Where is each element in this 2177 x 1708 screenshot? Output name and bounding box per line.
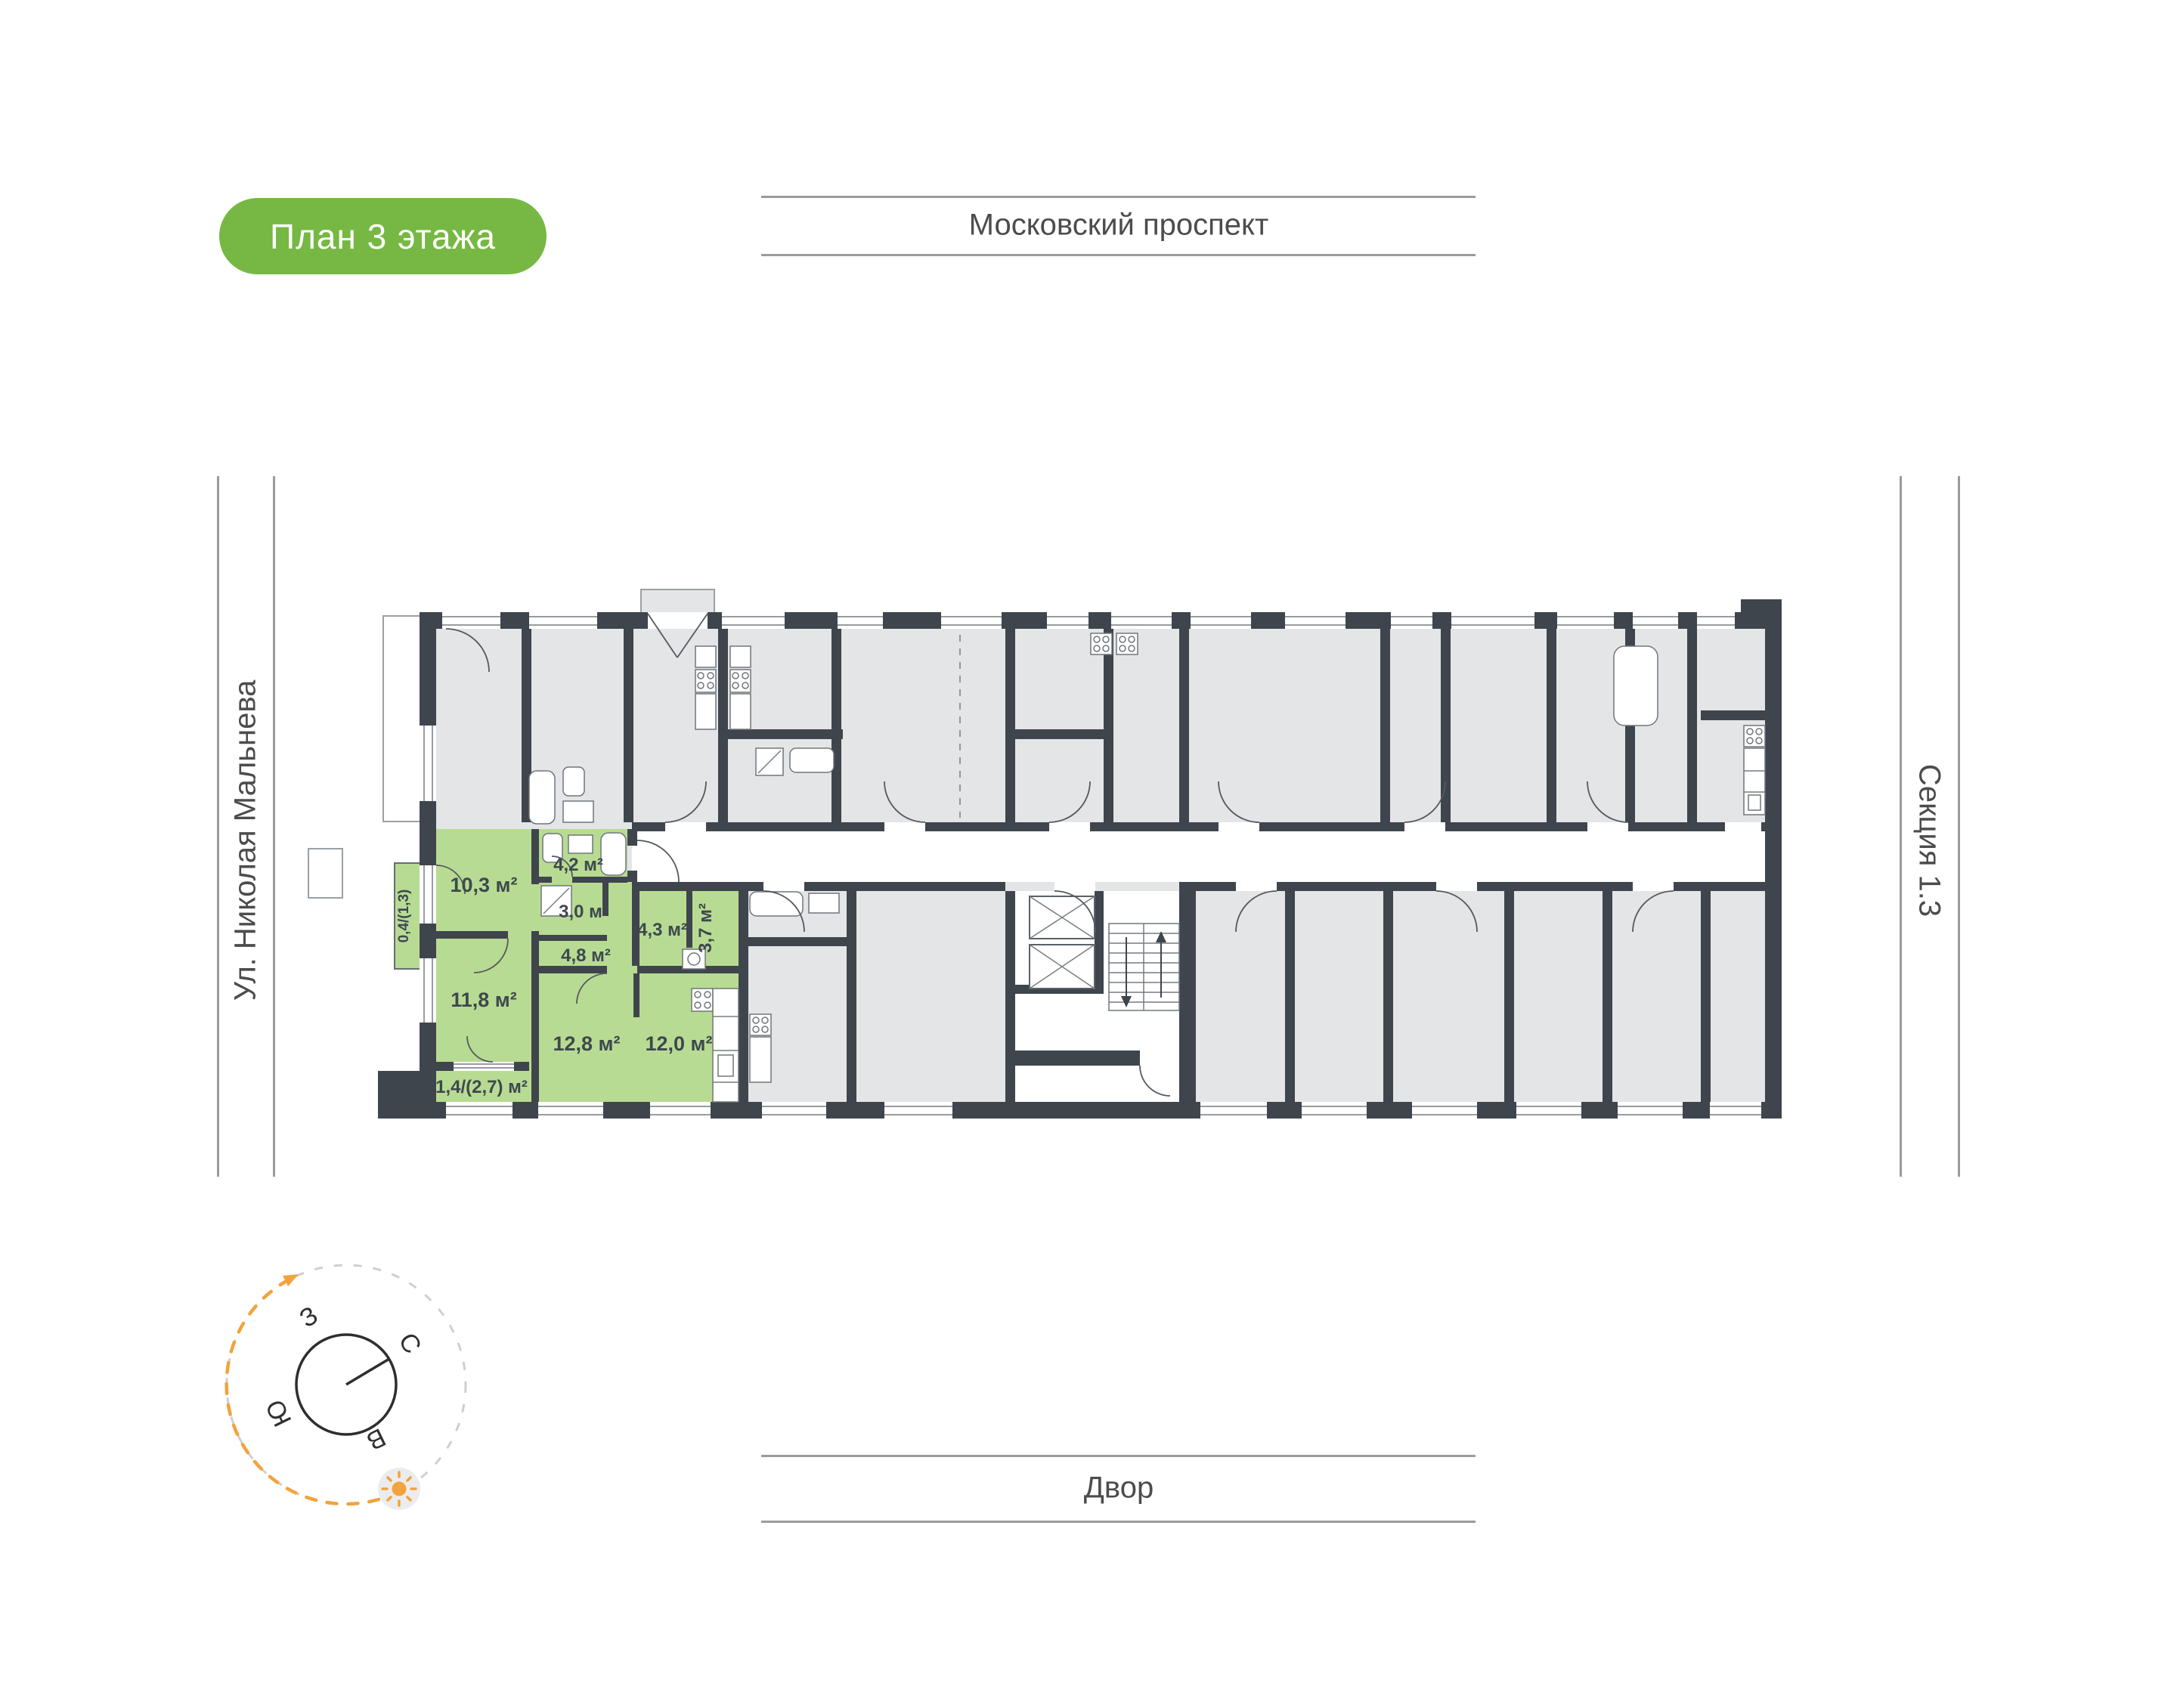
bottom-street-line-lower	[761, 1521, 1476, 1523]
bathtub-icon	[790, 748, 834, 772]
left-street-line-inner	[273, 476, 275, 1177]
toilet-icon	[563, 767, 584, 796]
shower-icon	[756, 748, 783, 775]
staircase	[1109, 924, 1179, 1010]
left-street-line-outer	[217, 476, 219, 1177]
sun-icon	[378, 1468, 420, 1510]
room-label-wc: 3,0 м²	[559, 902, 609, 922]
sink-icon	[568, 835, 593, 853]
kitchen-column-icon	[730, 646, 751, 729]
bottom-street-line-upper	[761, 1455, 1476, 1457]
bathtub-icon	[601, 833, 626, 875]
top-street-line-lower	[761, 254, 1476, 256]
compass-west-letter: З	[295, 1301, 324, 1333]
stove-icon	[692, 989, 713, 1011]
room-label-balcony: 1,4/(2,7) м²	[435, 1077, 528, 1097]
bathtub-icon	[529, 771, 555, 824]
bathtub-icon	[1614, 646, 1658, 726]
kitchen-column-icon	[750, 1014, 771, 1082]
compass-north-letter: С	[393, 1328, 427, 1359]
compass-south-letter: Ю	[260, 1395, 297, 1431]
sink-icon	[718, 1055, 733, 1076]
compass: З С Ю В	[203, 1245, 505, 1555]
section-label: Секция 1.3	[1912, 764, 1946, 917]
kitchen-column-icon	[1744, 726, 1765, 815]
kitchen-column-icon	[713, 989, 739, 1102]
room-label-storage: 4,3 м²	[637, 920, 687, 940]
room-label-bedroom: 11,8 м²	[451, 989, 517, 1011]
section-line-outer	[1958, 476, 1960, 1177]
room-label-bathroom-2: 3,7 м²	[695, 903, 716, 953]
neighbor-balcony	[308, 849, 342, 898]
section-line-inner	[1900, 476, 1902, 1177]
bathtub-icon	[750, 892, 803, 916]
bottom-street-label: Двор	[1084, 1471, 1154, 1505]
top-street-line-upper	[761, 196, 1476, 198]
sun-path-arrow	[283, 1274, 299, 1286]
room-label-hallway: 10,3 м²	[450, 874, 517, 896]
corner-balcony	[383, 616, 421, 822]
sink-icon	[563, 801, 593, 822]
floor-plan-page: План 3 этажа Московский проспект Двор Ул…	[0, 0, 2177, 1708]
room-label-bathroom: 4,2 м²	[553, 855, 603, 875]
kitchen-column-icon	[695, 646, 716, 729]
top-street-label: Московский проспект	[969, 209, 1269, 243]
room-label-kitchen: 12,0 м²	[645, 1032, 712, 1055]
entrance-bay	[641, 589, 714, 614]
floor-plan: 10,3 м² 4,2 м² 3,0 м² 4,8 м² 4,3 м² 3,7 …	[302, 582, 1807, 1134]
stove-icon	[1091, 633, 1112, 654]
room-label-living-room: 12,8 м²	[553, 1032, 620, 1055]
room-label-balcony-small: 0,4/(1,3)	[396, 890, 412, 943]
floor-badge[interactable]: План 3 этажа	[219, 198, 547, 274]
sink-icon	[809, 893, 839, 913]
left-street-label: Ул. Николая Мальнева	[229, 680, 263, 1001]
stove-icon	[1116, 633, 1138, 654]
room-label-inner-corridor: 4,8 м²	[561, 945, 611, 966]
